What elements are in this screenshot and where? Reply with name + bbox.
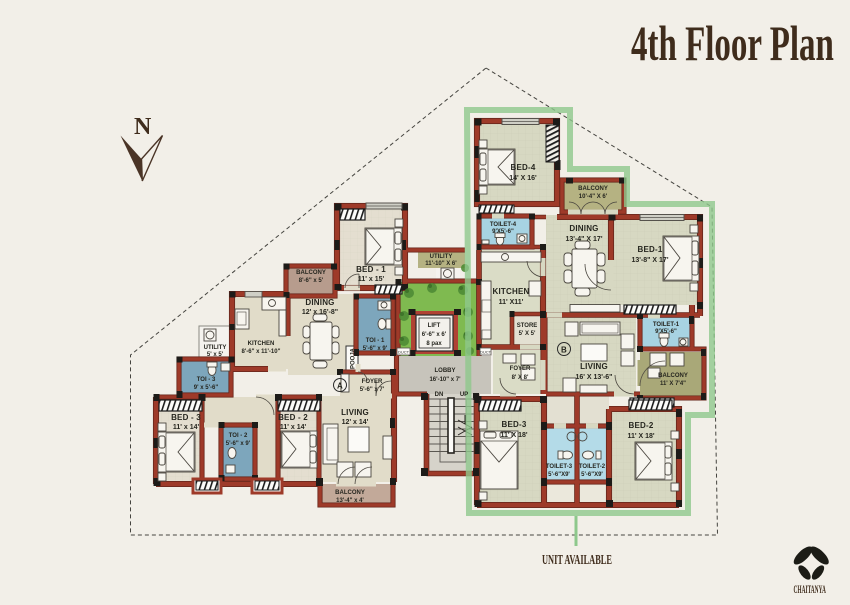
- svg-text:FOYER: FOYER: [510, 366, 531, 372]
- svg-text:11' x 15': 11' x 15': [358, 276, 385, 283]
- svg-text:DINING: DINING: [569, 224, 598, 233]
- svg-text:N: N: [134, 114, 152, 140]
- svg-text:TOILET-4: TOILET-4: [490, 222, 517, 228]
- svg-text:11' X 7'4": 11' X 7'4": [660, 381, 686, 387]
- svg-text:11'-10" X 6': 11'-10" X 6': [425, 261, 457, 267]
- svg-text:TOILET-1: TOILET-1: [653, 322, 680, 328]
- svg-text:DUCT: DUCT: [398, 350, 410, 355]
- svg-text:STORE: STORE: [517, 323, 538, 329]
- svg-text:5'-6" x 7': 5'-6" x 7': [360, 387, 385, 393]
- svg-text:5'-6" x 9': 5'-6" x 9': [226, 441, 251, 447]
- svg-text:LIVING: LIVING: [580, 362, 608, 371]
- svg-text:14' X 16': 14' X 16': [509, 175, 537, 182]
- svg-text:6'-6" x 6': 6'-6" x 6': [422, 332, 447, 338]
- svg-text:5'-6" x 9': 5'-6" x 9': [363, 346, 388, 352]
- svg-text:11' x 14': 11' x 14': [280, 424, 307, 431]
- svg-text:TOI - 1: TOI - 1: [366, 338, 385, 344]
- svg-text:16'-10" x 7': 16'-10" x 7': [429, 377, 461, 383]
- svg-text:BED - 1: BED - 1: [356, 265, 386, 274]
- svg-text:12' x 16'-8": 12' x 16'-8": [302, 309, 338, 316]
- svg-text:DUCT: DUCT: [480, 350, 492, 355]
- svg-text:CHAITANYA: CHAITANYA: [794, 583, 827, 596]
- svg-text:TOI - 2: TOI - 2: [229, 433, 248, 439]
- svg-text:KITCHEN: KITCHEN: [248, 341, 275, 347]
- svg-text:TOILET-2: TOILET-2: [579, 464, 606, 470]
- svg-text:DINING: DINING: [305, 298, 334, 307]
- svg-text:9' x 5'-6": 9' x 5'-6": [194, 385, 219, 391]
- svg-text:BALCONY: BALCONY: [578, 186, 608, 192]
- svg-text:13'-8" X 17': 13'-8" X 17': [631, 257, 668, 264]
- svg-text:UTILITY: UTILITY: [204, 345, 227, 351]
- svg-text:LIFT: LIFT: [428, 323, 441, 329]
- svg-text:13'-4" X 17': 13'-4" X 17': [565, 236, 602, 243]
- svg-text:8 pax: 8 pax: [426, 341, 442, 347]
- svg-text:B: B: [561, 346, 567, 355]
- svg-text:11' X11': 11' X11': [499, 299, 524, 306]
- svg-text:8'-6" x 11'-10": 8'-6" x 11'-10": [242, 349, 281, 355]
- svg-text:KITCHEN: KITCHEN: [493, 287, 530, 296]
- svg-text:BED-3: BED-3: [501, 420, 526, 429]
- svg-text:BED-4: BED-4: [510, 163, 535, 172]
- svg-text:BED-1: BED-1: [637, 245, 662, 254]
- svg-text:BED - 3: BED - 3: [171, 413, 201, 422]
- svg-text:FOYER: FOYER: [362, 379, 383, 385]
- svg-text:11' x 14': 11' x 14': [173, 424, 200, 431]
- svg-text:BED - 2: BED - 2: [278, 413, 308, 422]
- svg-text:DN: DN: [435, 392, 444, 398]
- svg-text:5' x 5': 5' x 5': [207, 352, 224, 358]
- svg-text:5'-6"X9': 5'-6"X9': [581, 472, 603, 478]
- svg-text:TOI - 3: TOI - 3: [197, 377, 216, 383]
- svg-text:LIVING: LIVING: [341, 408, 369, 417]
- svg-text:10'-4" X 6': 10'-4" X 6': [579, 194, 608, 200]
- svg-text:BALCONY: BALCONY: [296, 270, 326, 276]
- svg-text:5' X 5': 5' X 5': [519, 331, 536, 337]
- svg-text:BED-2: BED-2: [628, 421, 653, 430]
- svg-text:8'-6" x 5': 8'-6" x 5': [299, 278, 324, 284]
- svg-text:UTILITY: UTILITY: [430, 254, 453, 260]
- svg-text:9'X5'-6": 9'X5'-6": [655, 329, 677, 335]
- svg-text:UNIT AVAILABLE: UNIT AVAILABLE: [542, 553, 612, 567]
- svg-text:11' X 18': 11' X 18': [500, 432, 527, 439]
- svg-text:16' X 13'-6": 16' X 13'-6": [575, 374, 612, 381]
- svg-text:BALCONY: BALCONY: [335, 490, 365, 496]
- svg-text:UP: UP: [460, 392, 468, 398]
- svg-text:4th Floor Plan: 4th Floor Plan: [631, 16, 834, 71]
- svg-text:11' X 18': 11' X 18': [627, 433, 654, 440]
- svg-text:BALCONY: BALCONY: [658, 373, 688, 379]
- svg-text:TOILET-3: TOILET-3: [546, 464, 573, 470]
- svg-text:8' X 8': 8' X 8': [512, 375, 529, 381]
- svg-text:A: A: [337, 382, 343, 391]
- svg-text:9'X5'-6": 9'X5'-6": [492, 229, 514, 235]
- svg-text:LOBBY: LOBBY: [435, 368, 456, 374]
- svg-text:5'-6"X9': 5'-6"X9': [548, 472, 570, 478]
- svg-text:13'-4" x 4': 13'-4" x 4': [336, 498, 364, 504]
- svg-text:12' x 14': 12' x 14': [342, 419, 369, 426]
